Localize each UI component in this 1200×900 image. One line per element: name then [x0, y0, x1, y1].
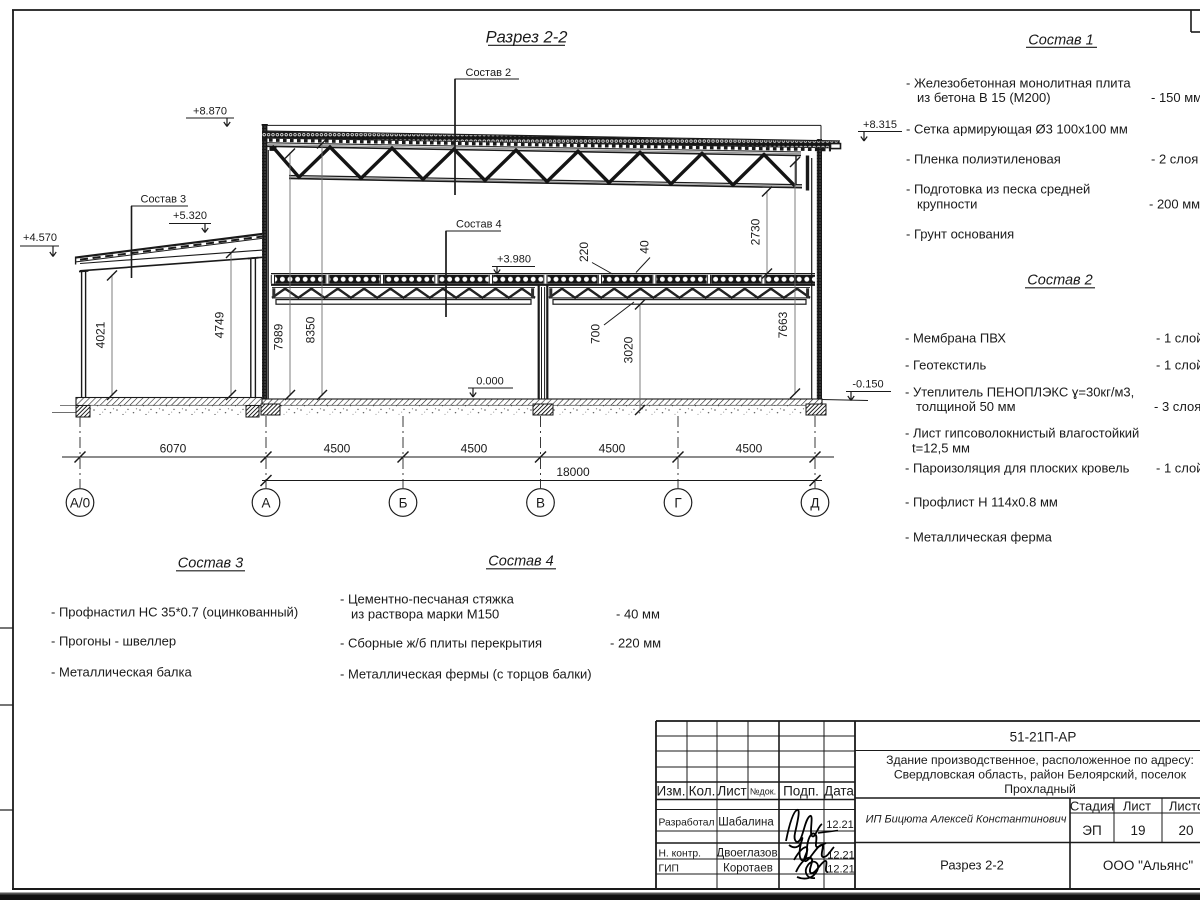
- svg-text:4021: 4021: [94, 321, 108, 348]
- svg-text:Состав 2: Состав 2: [1027, 273, 1092, 289]
- svg-text:- Грунт основания: - Грунт основания: [906, 227, 1014, 242]
- svg-text:t=12,5 мм: t=12,5 мм: [912, 441, 970, 456]
- svg-text:крупности: крупности: [917, 197, 977, 212]
- svg-text:19: 19: [1130, 823, 1145, 838]
- svg-text:- Металлическая фермы (с торцо: - Металлическая фермы (с торцов балки): [340, 667, 592, 682]
- svg-text:Состав 2: Состав 2: [466, 67, 512, 79]
- svg-text:ЭП: ЭП: [1082, 823, 1101, 838]
- svg-text:700: 700: [589, 324, 603, 344]
- svg-text:Изм.: Изм.: [657, 784, 686, 799]
- svg-text:Листов: Листов: [1169, 799, 1200, 814]
- svg-text:В: В: [536, 496, 545, 511]
- svg-text:- 40 мм: - 40 мм: [616, 607, 660, 622]
- svg-text:- 220 мм: - 220 мм: [610, 636, 661, 651]
- svg-text:Прохладный: Прохладный: [1004, 782, 1076, 796]
- svg-text:Н. контр.: Н. контр.: [659, 849, 702, 860]
- svg-text:220: 220: [577, 242, 591, 262]
- svg-text:+8.870: +8.870: [193, 106, 227, 118]
- svg-text:40: 40: [638, 240, 652, 254]
- svg-text:Д: Д: [810, 496, 819, 511]
- svg-text:4500: 4500: [599, 442, 626, 456]
- svg-text:Лист: Лист: [1123, 799, 1151, 814]
- svg-text:- Металлическая балка: - Металлическая балка: [51, 665, 192, 680]
- svg-text:Дата: Дата: [824, 784, 854, 799]
- svg-text:4749: 4749: [213, 311, 227, 338]
- svg-text:Разработал: Разработал: [659, 817, 715, 829]
- svg-text:А/0: А/0: [70, 496, 90, 511]
- svg-text:8350: 8350: [304, 316, 318, 343]
- svg-text:- 200 мм: - 200 мм: [1149, 197, 1200, 212]
- svg-text:+5.320: +5.320: [173, 210, 207, 222]
- svg-text:из бетона В 15 (М200): из бетона В 15 (М200): [917, 90, 1051, 105]
- svg-text:Стадия: Стадия: [1070, 799, 1114, 814]
- svg-text:№док.: №док.: [750, 787, 776, 797]
- svg-text:- Геотекстиль: - Геотекстиль: [905, 358, 986, 373]
- svg-text:7663: 7663: [776, 311, 790, 338]
- svg-text:Г: Г: [674, 496, 682, 511]
- svg-text:51-21П-АР: 51-21П-АР: [1010, 730, 1077, 745]
- svg-text:Состав 4: Состав 4: [456, 219, 502, 231]
- svg-text:0.000: 0.000: [476, 376, 504, 388]
- svg-text:Здание производственное, распо: Здание производственное, расположенное п…: [886, 753, 1194, 767]
- svg-text:- Сетка армирующая Ø3 100х100: - Сетка армирующая Ø3 100х100 мм: [906, 122, 1128, 137]
- svg-text:Двоеглазов: Двоеглазов: [716, 848, 777, 860]
- svg-text:Шабалина: Шабалина: [718, 817, 774, 829]
- svg-text:- Пароизоляция для плоских кро: - Пароизоляция для плоских кровель: [905, 461, 1130, 476]
- svg-text:- Утеплитель ПЕНОПЛЭКС ɣ=30кг/: - Утеплитель ПЕНОПЛЭКС ɣ=30кг/м3,: [905, 385, 1134, 400]
- svg-text:Состав 4: Состав 4: [488, 554, 553, 570]
- svg-text:- Сборные ж/б плиты перекрытия: - Сборные ж/б плиты перекрытия: [340, 636, 542, 651]
- svg-text:-0.150: -0.150: [852, 379, 883, 391]
- svg-text:4500: 4500: [736, 442, 763, 456]
- svg-text:3020: 3020: [622, 336, 636, 363]
- svg-text:Подп.: Подп.: [783, 784, 819, 799]
- svg-text:ООО "Альянс": ООО "Альянс": [1103, 858, 1193, 873]
- svg-text:- 1 слой: - 1 слой: [1156, 331, 1200, 346]
- svg-text:- Мембрана ПВХ: - Мембрана ПВХ: [905, 331, 1006, 346]
- svg-text:Разрез 2-2: Разрез 2-2: [940, 858, 1004, 873]
- svg-text:Состав 3: Состав 3: [141, 194, 187, 206]
- svg-text:- Лист гипсоволокнистый влагос: - Лист гипсоволокнистый влагостойкий: [905, 426, 1139, 441]
- svg-text:Б: Б: [399, 496, 408, 511]
- svg-text:12.21: 12.21: [827, 864, 855, 876]
- svg-text:ГИП: ГИП: [659, 864, 679, 875]
- svg-text:+4.570: +4.570: [23, 232, 57, 244]
- svg-text:7989: 7989: [272, 323, 286, 350]
- svg-text:- 1 слой: - 1 слой: [1156, 358, 1200, 373]
- svg-text:- Металлическая ферма: - Металлическая ферма: [905, 530, 1053, 545]
- svg-text:- 2 слоя: - 2 слоя: [1151, 152, 1198, 167]
- svg-text:Свердловская область, район Бе: Свердловская область, район Белоярский, …: [894, 768, 1187, 782]
- svg-text:Кол.: Кол.: [689, 784, 716, 799]
- svg-text:- Цементно-песчаная стяжка: - Цементно-песчаная стяжка: [340, 592, 515, 607]
- svg-text:Лист: Лист: [717, 784, 746, 799]
- svg-text:+8.315: +8.315: [863, 119, 897, 131]
- svg-text:- Железобетонная монолитная п: - Железобетонная монолитная плита: [906, 76, 1131, 91]
- svg-text:Состав 1: Состав 1: [1028, 33, 1093, 49]
- svg-text:- 3 слоя: - 3 слоя: [1154, 399, 1200, 414]
- svg-text:- Прогоны - швеллер: - Прогоны - швеллер: [51, 634, 176, 649]
- svg-text:- 1 слой: - 1 слой: [1156, 461, 1200, 476]
- svg-text:толщиной 50 мм: толщиной 50 мм: [916, 399, 1016, 414]
- svg-text:Коротаев: Коротаев: [723, 863, 773, 875]
- svg-text:- Пленка полиэтиленовая: - Пленка полиэтиленовая: [906, 152, 1061, 167]
- svg-text:ИП Бицюта Алексей Константинов: ИП Бицюта Алексей Константинович: [866, 814, 1067, 826]
- svg-text:4500: 4500: [324, 442, 351, 456]
- svg-text:- 150 мм: - 150 мм: [1151, 90, 1200, 105]
- svg-text:+3.980: +3.980: [497, 254, 531, 266]
- svg-text:20: 20: [1178, 823, 1193, 838]
- svg-text:- Подготовка из песка средней: - Подготовка из песка средней: [906, 182, 1090, 197]
- svg-text:6070: 6070: [160, 442, 187, 456]
- svg-text:2730: 2730: [749, 218, 763, 245]
- svg-text:- Профнастил НС 35*0.7 (оцинко: - Профнастил НС 35*0.7 (оцинкованный): [51, 605, 298, 620]
- svg-text:12.21: 12.21: [826, 819, 854, 831]
- svg-text:Состав 3: Состав 3: [178, 556, 243, 572]
- svg-text:из раствора марки М150: из раствора марки М150: [351, 607, 499, 622]
- svg-text:Разрез 2-2: Разрез 2-2: [486, 29, 568, 47]
- svg-text:А: А: [261, 496, 270, 511]
- svg-text:4500: 4500: [461, 442, 488, 456]
- svg-text:18000: 18000: [556, 465, 590, 479]
- svg-text:- Профлист Н 114х0.8 мм: - Профлист Н 114х0.8 мм: [905, 495, 1058, 510]
